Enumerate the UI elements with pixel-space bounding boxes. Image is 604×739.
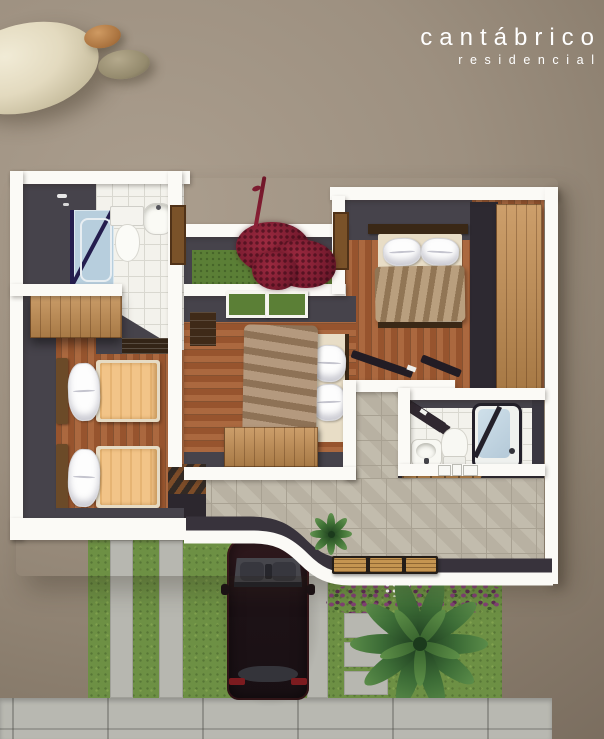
- pebble-large: [0, 7, 108, 128]
- decor-pebbles: [0, 0, 604, 739]
- poster-canvas: cantábrico residencial: [0, 0, 604, 739]
- brand-tagline: residencial: [420, 53, 601, 67]
- brand-name: cantábrico: [420, 24, 601, 52]
- brand-logo: cantábrico residencial: [420, 24, 594, 67]
- pebble-olive: [96, 47, 151, 82]
